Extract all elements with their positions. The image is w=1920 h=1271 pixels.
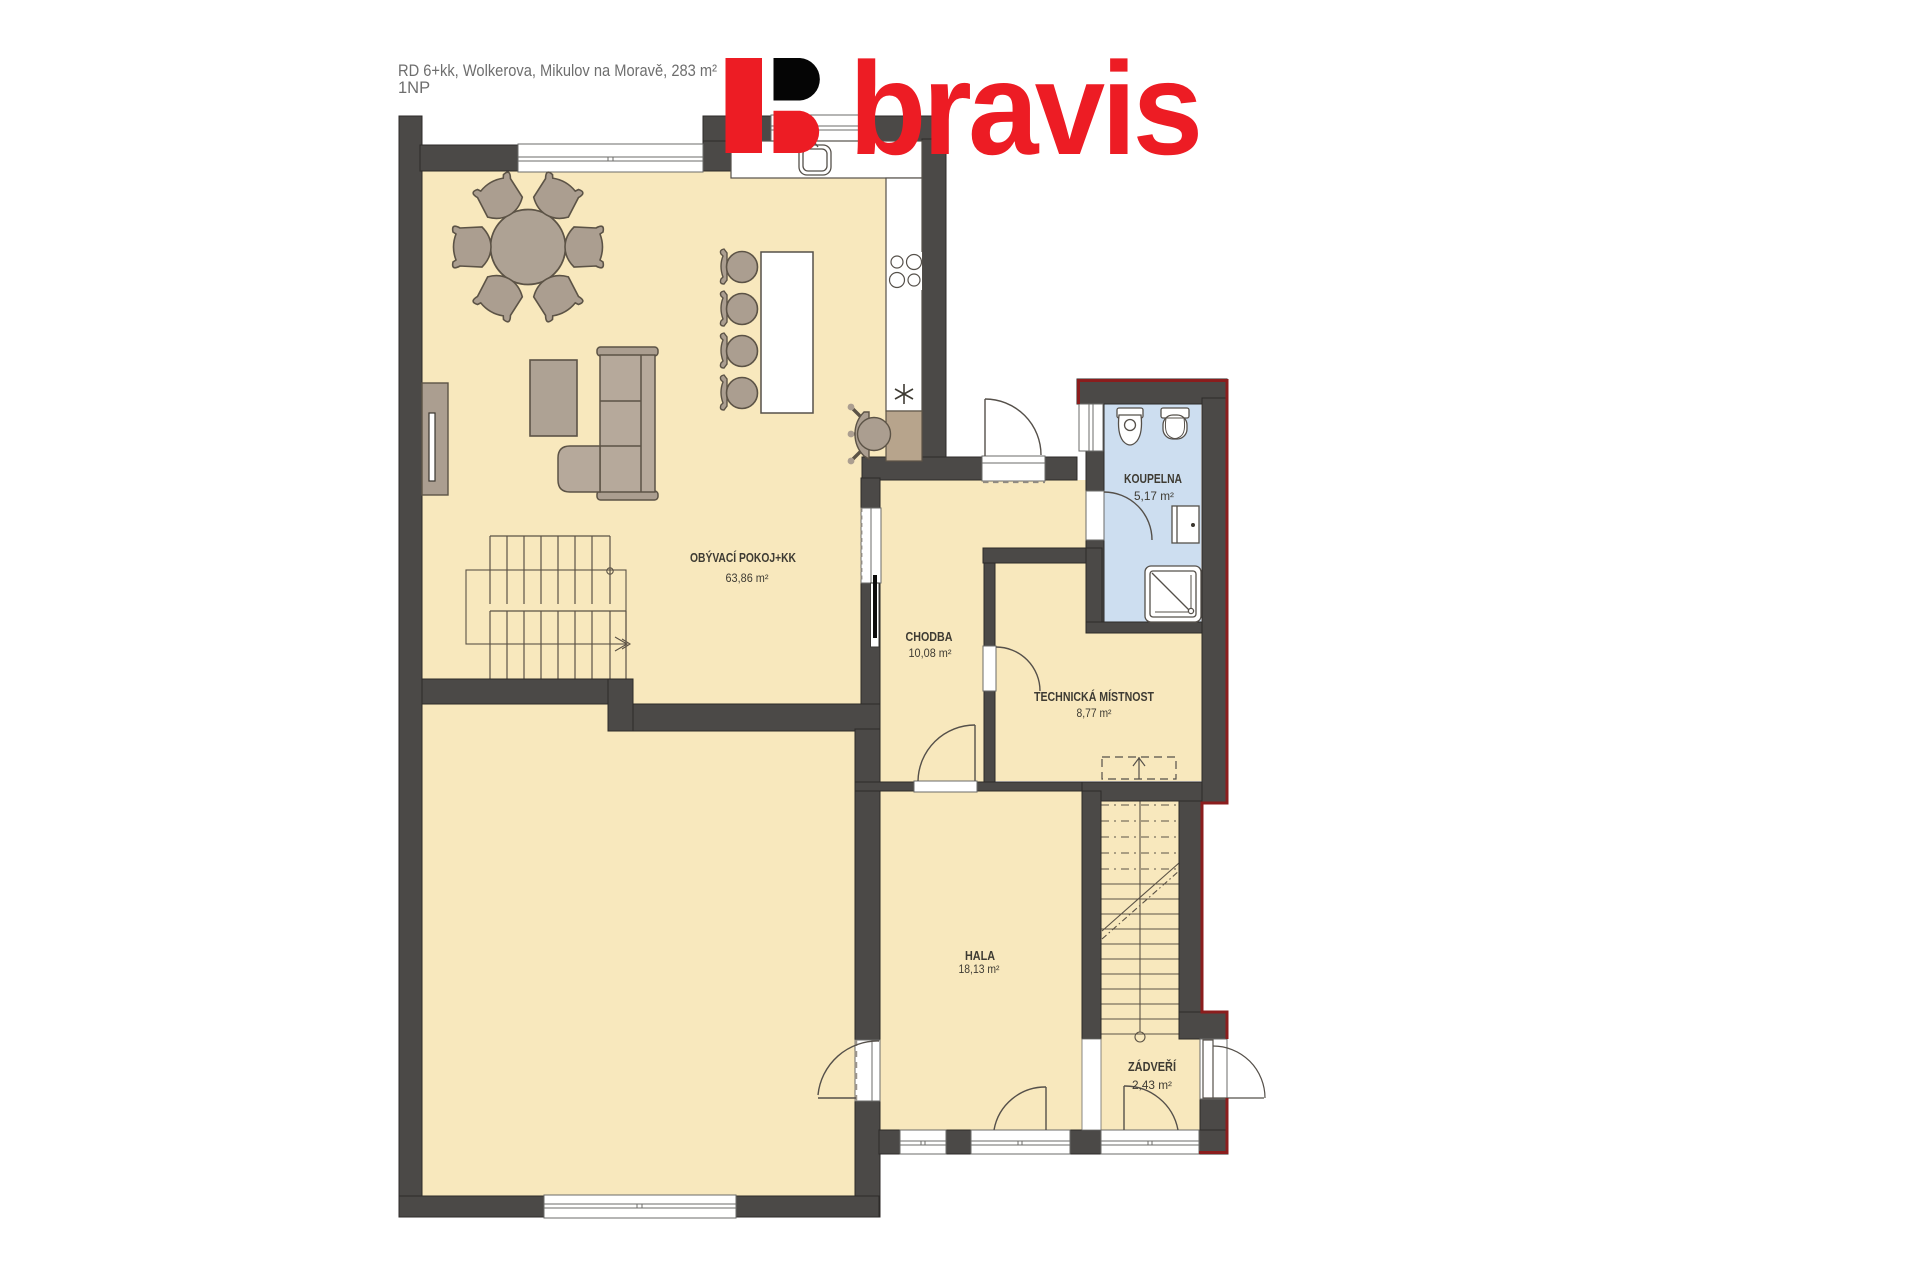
svg-text:5,17 m²: 5,17 m² [1134, 491, 1174, 503]
svg-text:1NP: 1NP [398, 79, 430, 97]
svg-text:TECHNICKÁ MÍSTNOST: TECHNICKÁ MÍSTNOST [1034, 689, 1154, 704]
svg-text:CHODBA: CHODBA [906, 629, 953, 644]
svg-text:8,77 m²: 8,77 m² [1077, 708, 1112, 720]
svg-text:bravis: bravis [849, 36, 1199, 183]
svg-text:HALA: HALA [965, 948, 995, 963]
svg-text:10,08 m²: 10,08 m² [909, 648, 952, 660]
svg-text:18,13 m²: 18,13 m² [959, 964, 1000, 976]
svg-text:ZÁDVEŘÍ: ZÁDVEŘÍ [1128, 1059, 1176, 1074]
svg-text:63,86 m²: 63,86 m² [726, 573, 769, 585]
svg-text:2,43 m²: 2,43 m² [1132, 1080, 1172, 1092]
svg-text:OBÝVACÍ POKOJ+KK: OBÝVACÍ POKOJ+KK [690, 550, 797, 565]
svg-text:KOUPELNA: KOUPELNA [1124, 471, 1182, 486]
svg-text:RD 6+kk, Wolkerova, Mikulov na: RD 6+kk, Wolkerova, Mikulov na Moravě, 2… [398, 62, 717, 80]
